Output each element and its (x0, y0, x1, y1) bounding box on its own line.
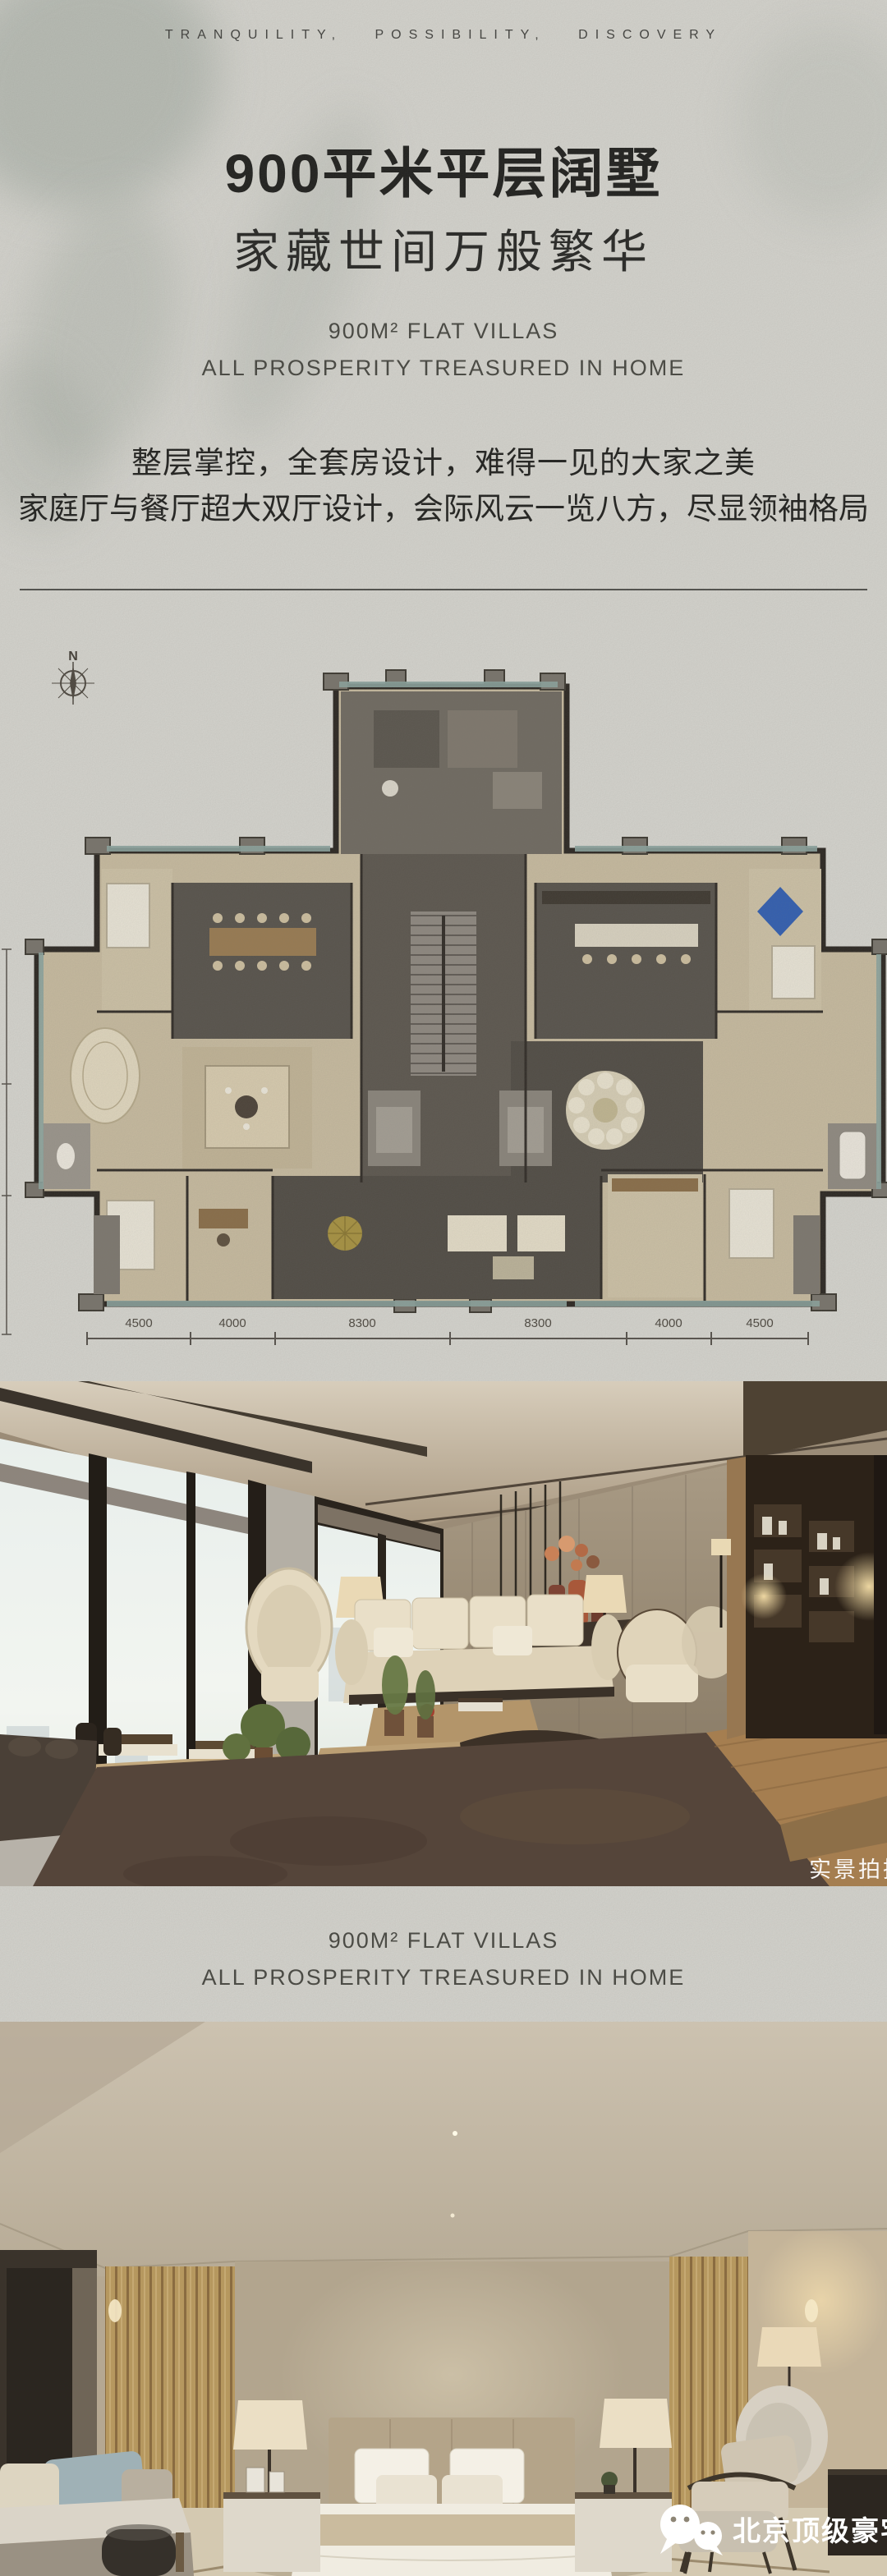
svg-text:4500: 4500 (746, 1316, 773, 1330)
plan-desk (199, 1209, 248, 1228)
dimension-labels: 4500 4000 8300 8300 4000 4500 (125, 1316, 773, 1330)
plan-sofa (448, 1215, 507, 1251)
divider-line (20, 589, 867, 590)
subtitle-english-line2: ALL PROSPERITY TREASURED IN HOME (0, 356, 887, 381)
photo-frame (269, 2472, 284, 2492)
dimension-line (87, 1332, 808, 1345)
svg-text:4500: 4500 (125, 1316, 152, 1330)
living-room-photo: 实景拍摄 (0, 1381, 887, 1886)
body-text-line1: 整层掌控，全套房设计，难得一见的大家之美 (0, 438, 887, 482)
stool-vase (102, 2524, 176, 2576)
subtitle-chinese: 家藏世间万般繁华 (0, 215, 887, 282)
svg-text:4000: 4000 (218, 1316, 246, 1330)
svg-text:8300: 8300 (348, 1316, 375, 1330)
left-dimension-line (2, 949, 11, 1334)
plan-tower-room (374, 710, 439, 768)
subtitle-english-line1: 900M² FLAT VILLAS (0, 319, 887, 344)
plan-kitchen-island (575, 924, 698, 947)
svg-text:4000: 4000 (655, 1316, 682, 1330)
band-english-line2: ALL PROSPERITY TREASURED IN HOME (0, 1965, 887, 1991)
brand-name: 北京顶级豪宅汇 (733, 2515, 887, 2547)
plan-bed (729, 1189, 774, 1258)
plan-bed (107, 884, 149, 948)
plan-round-table (566, 1071, 645, 1150)
plan-bed (772, 946, 815, 999)
plan-dining-table (209, 928, 316, 956)
header-tagline: TRANQUILITY, POSSIBILITY, DISCOVERY (0, 28, 887, 43)
title-chinese: 900平米平层阔墅 (0, 130, 887, 209)
floor-plan: N (0, 641, 887, 1355)
main-sofa (335, 1595, 624, 1705)
bedroom-photo: 北京顶级豪宅汇 (0, 2022, 887, 2576)
svg-text:8300: 8300 (524, 1316, 551, 1330)
photo-watermark: 实景拍摄 (809, 1857, 887, 1882)
poster-page: TRANQUILITY, POSSIBILITY, DISCOVERY 900平… (0, 0, 887, 2576)
body-text-line2: 家庭厅与餐厅超大双厅设计，会际风云一览八方，尽显领袖格局 (0, 484, 887, 528)
photo-frame (246, 2468, 264, 2492)
band-english-line1: 900M² FLAT VILLAS (0, 1928, 887, 1954)
compass-icon: N (52, 650, 94, 705)
plan-tower-room (448, 710, 517, 768)
plan-sofa (517, 1215, 565, 1251)
bed (292, 2504, 612, 2576)
svg-text:N: N (68, 650, 78, 664)
